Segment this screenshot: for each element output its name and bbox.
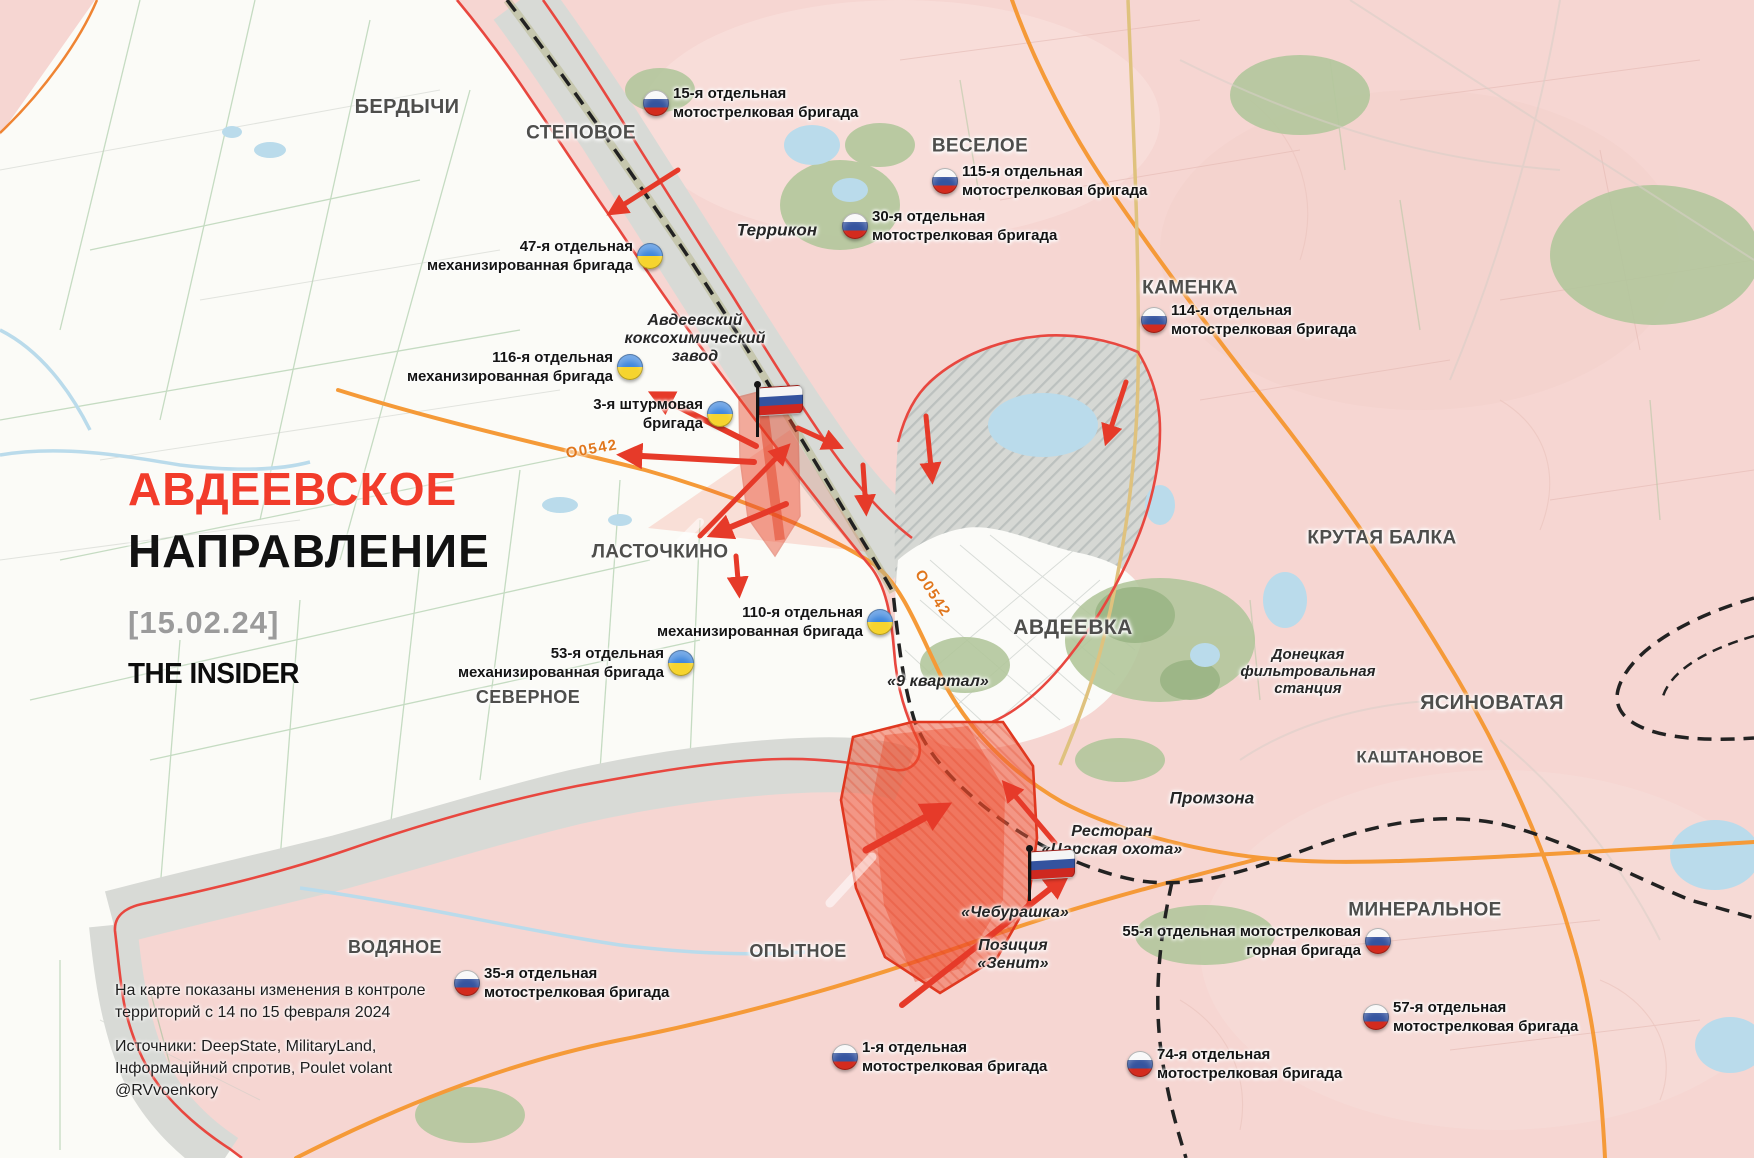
- russian-flag-icon-114-omsbr: [1141, 307, 1167, 333]
- place-label-avdeevka: АВДЕЕВКА: [1013, 616, 1132, 640]
- place-label-terrikon: Террикон: [737, 220, 817, 239]
- unit-label-47-ombr: 47-я отдельнаямеханизированная бригада: [427, 237, 633, 275]
- unit-label-115-omsbr: 115-я отдельнаямотострелковая бригада: [962, 162, 1147, 200]
- place-label-promzona: Промзона: [1170, 788, 1255, 807]
- place-label-krutaya-balka: КРУТАЯ БАЛКА: [1307, 527, 1456, 548]
- russian-flag-icon-35-omsbr: [454, 970, 480, 996]
- unit-label-53-ombr: 53-я отдельнаямеханизированная бригада: [458, 644, 664, 682]
- map-canvas: АВДЕЕВСКОЕ НАПРАВЛЕНИЕ [15.02.24] THE IN…: [0, 0, 1754, 1158]
- place-label-berdychi: БЕРДЫЧИ: [355, 96, 460, 118]
- footer-note-line2: территорий с 14 по 15 февраля 2024: [115, 1002, 426, 1024]
- russian-flag-icon-115-omsbr: [932, 168, 958, 194]
- place-label-opytnoe: ОПЫТНОЕ: [749, 941, 846, 961]
- place-label-cheburashka: «Чебурашка»: [961, 904, 1069, 922]
- unit-label-3-oshbr: 3-я штурмоваябригада: [593, 395, 703, 433]
- russian-flag-icon-15-omsbr: [643, 90, 669, 116]
- pole-flag-koksohim-flag: [759, 385, 803, 417]
- place-label-road-o0542-avdeevka: О0542: [911, 567, 954, 620]
- place-label-mineralnoe: МИНЕРАЛЬНОЕ: [1348, 899, 1501, 920]
- russian-flag-icon-1-omsbr: [832, 1044, 858, 1070]
- russian-flag-icon-30-omsbr: [842, 213, 868, 239]
- label-layer: АВДЕЕВСКОЕ НАПРАВЛЕНИЕ [15.02.24] THE IN…: [0, 0, 1754, 1158]
- map-title-line2: НАПРАВЛЕНИЕ: [128, 524, 490, 578]
- footer-sources-line1: Источники: DeepState, MilitaryLand,: [115, 1036, 426, 1058]
- footer-sources-line2: Інформаційний спротив, Poulet volant: [115, 1058, 426, 1080]
- footer-note-line1: На карте показаны изменения в контроле: [115, 980, 426, 1002]
- place-label-stepovoe: СТЕПОВОЕ: [526, 122, 636, 143]
- place-label-road-o0542-west: О0542: [565, 437, 620, 463]
- unit-label-30-omsbr: 30-я отдельнаямотострелковая бригада: [872, 207, 1057, 245]
- map-title-line1: АВДЕЕВСКОЕ: [128, 462, 457, 516]
- unit-label-114-omsbr: 114-я отдельнаямотострелковая бригада: [1171, 301, 1356, 339]
- unit-label-74-omsbr: 74-я отдельнаямотострелковая бригада: [1157, 1045, 1342, 1083]
- ukrainian-flag-icon-116-ombr: [617, 354, 643, 380]
- place-label-veseloe: ВЕСЕЛОЕ: [932, 135, 1028, 156]
- unit-label-55-omsbr: 55-я отдельная мотострелковаягорная бриг…: [1122, 922, 1361, 960]
- place-label-yasinovataya: ЯСИНОВАТАЯ: [1420, 692, 1564, 714]
- unit-label-110-ombr: 110-я отдельнаямеханизированная бригада: [657, 603, 863, 641]
- place-label-vodyanoe: ВОДЯНОЕ: [348, 937, 442, 957]
- russian-flag-icon-57-omsbr: [1363, 1004, 1389, 1030]
- footer-note: На карте показаны изменения в контроле т…: [115, 980, 426, 1102]
- map-date: [15.02.24]: [128, 605, 279, 641]
- ukrainian-flag-icon-53-ombr: [668, 650, 694, 676]
- place-label-koksohim: Авдеевскийкоксохимическийзавод: [624, 312, 765, 366]
- place-label-zenit: Позиция«Зенит»: [977, 937, 1048, 973]
- ukrainian-flag-icon-3-oshbr: [707, 401, 733, 427]
- unit-label-1-omsbr: 1-я отдельнаямотострелковая бригада: [862, 1038, 1047, 1076]
- place-label-severnoe: СЕВЕРНОЕ: [476, 687, 580, 707]
- unit-label-57-omsbr: 57-я отдельнаямотострелковая бригада: [1393, 998, 1578, 1036]
- unit-label-116-ombr: 116-я отдельнаямеханизированная бригада: [407, 348, 613, 386]
- place-label-lastochkino: ЛАСТОЧКИНО: [592, 541, 729, 562]
- place-label-9-kvartal: «9 квартал»: [887, 673, 989, 691]
- russian-flagpole-icon-cheburashka-flag: [1028, 847, 1078, 901]
- ukrainian-flag-icon-110-ombr: [867, 609, 893, 635]
- russian-flagpole-icon-koksohim-flag: [756, 383, 806, 437]
- russian-flag-icon-74-omsbr: [1127, 1051, 1153, 1077]
- unit-label-15-omsbr: 15-я отдельнаямотострелковая бригада: [673, 84, 858, 122]
- ukrainian-flag-icon-47-ombr: [637, 243, 663, 269]
- footer-sources-line3: @RVvoenkory: [115, 1080, 426, 1102]
- place-label-filtr-station: Донецкаяфильтровальнаястанция: [1240, 647, 1375, 697]
- unit-label-35-omsbr: 35-я отдельнаямотострелковая бригада: [484, 964, 669, 1002]
- place-label-kashtanovoe: КАШТАНОВОЕ: [1356, 747, 1483, 766]
- place-label-kamenka: КАМЕНКА: [1142, 277, 1238, 298]
- insider-logo: THE INSIDER: [128, 658, 299, 691]
- russian-flag-icon-55-omsbr: [1365, 928, 1391, 954]
- pole-flag-cheburashka-flag: [1031, 849, 1075, 881]
